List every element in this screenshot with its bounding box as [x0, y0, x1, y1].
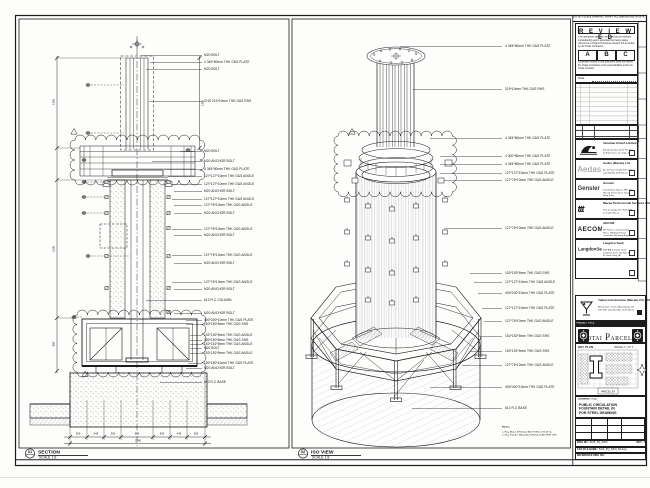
top-note: DO NOT SCALE DRAWING. VERIFY ALL DIMENSI…: [573, 16, 646, 19]
dimension-label: 1350: [52, 99, 55, 105]
callout-label: M20 BOLT: [204, 68, 220, 71]
consultant-gensler: Gensler Gensler Two Harbour Square 18/F,…: [575, 179, 639, 199]
callout-label: 127*76*10mm THK G&S ANGLE: [204, 254, 253, 257]
callout-label: M20 ANCHOR BOLT: [204, 367, 235, 370]
reference-row: REFERENCE DWG NO :: [575, 453, 646, 460]
callout-label: M20 ANCHOR BOLT: [204, 288, 235, 291]
callout-label: 610 R.C BASE: [505, 407, 527, 410]
callout-label: 127*127*10mm THK G&S PLATE: [505, 172, 555, 175]
review-checkbox[interactable]: [629, 190, 635, 196]
callout-label: 150*150*10mm THK G&S PLATE: [204, 362, 254, 365]
callout-label: M20 BOLT: [204, 347, 220, 350]
page-edge-line: [0, 477, 650, 478]
drawing-fields: DESIGNED - SCALE AS SHOWN CHECKED - DATE…: [575, 418, 646, 440]
parcel-lot-label: PARCEL 1, LOT 2: [614, 346, 634, 349]
callout-label: 127*127*10mm THK G&S ANGLE: [505, 281, 555, 284]
project-title-banner: Cotai Parcel 3: [575, 326, 646, 343]
callout-label: 127*76*10mm THK G&S ANGLE: [505, 364, 554, 367]
consultant-aedas: Aedas Aedas (Macau) Ltd. Av. da Praia Gr…: [575, 159, 639, 179]
status-options: A B C: [578, 50, 635, 60]
aecom-logo: AECOM: [578, 222, 602, 237]
callout-label: 127*127*10mm THK G&S PLATE: [505, 307, 555, 310]
gensler-logo: Gensler: [578, 182, 602, 197]
consultant-mps: ttt Macau Professional Services Ltd. Rua…: [575, 199, 639, 219]
callout-label: 4 345*50mm THK G&S PLATE: [204, 61, 250, 64]
callout-label: 127*76*10mm THK G&S ANGLE: [505, 179, 554, 182]
callout-label: 127*76*10mm THK G&S ANGLE: [204, 204, 253, 207]
date-row: Date :: [575, 75, 638, 83]
section-title: SECTION: [38, 449, 60, 455]
callout-label: 400*400*10mm THK G&S PLATE: [505, 386, 555, 389]
dimension-label: 650: [135, 432, 140, 435]
sheet-linework: [0, 0, 650, 488]
callout-label: M20 ANCHOR BOLT: [204, 312, 235, 315]
iso-scale: SCALE 1:8: [312, 456, 329, 460]
stamp-paragraph-1: This document has been reviewed by the r…: [578, 36, 635, 48]
drawing-title-block: DRAWING TITLE: PUBLIC CIRCULATION FOUNTA…: [575, 396, 646, 418]
revision-rows: B 28.05.15 ISSUED FOR APPROVAL KC A 11.0…: [575, 125, 638, 139]
consultant-langdonseah: LangdonSeah Langdon Seah 38/F AIA Kowloo…: [575, 239, 639, 259]
dimension-label: 300: [76, 432, 81, 435]
reviewed-stamp: R E V I E W E D This document has been r…: [575, 23, 638, 75]
callout-label: M20 BOLT: [204, 54, 220, 57]
consultant-empty: [575, 259, 639, 279]
project-title-label: PROJECT TITLE: [575, 322, 646, 325]
option-b[interactable]: B: [597, 50, 616, 61]
contractor-block: Yadea Construction (Macau) CO, LTD. Alam…: [575, 295, 646, 321]
callout-label: 4 345*50mm THK G&S PLATE: [505, 163, 551, 166]
callout-label: 219*10mm THK G&S RHS: [505, 88, 544, 91]
callout-label: 152*152*5mm THK G&S SHS: [505, 272, 549, 275]
callout-label: 152*152*5mm THK G&S ANGLE: [204, 334, 253, 337]
callout-label: 152*152*5mm THK G&S SHS: [505, 350, 549, 353]
dimension-label: 445: [93, 432, 98, 435]
drawing-title-label: DRAWING TITLE:: [578, 398, 647, 401]
dimension-label: 300: [159, 432, 164, 435]
review-checkbox[interactable]: [629, 210, 635, 216]
callout-label: 152*152*5mm THK G&S SHS: [505, 335, 549, 338]
callout-label: M20 ANCHOR BOLT: [204, 160, 235, 163]
callout-label: M20 ANCHOR BOLT: [204, 234, 235, 237]
contractor-stamp-square: [637, 310, 642, 315]
review-checkbox[interactable]: [629, 170, 635, 176]
callout-label: 4 300*50mm THK G&S PLATE: [505, 155, 551, 158]
contractor-address: Alameda Dr. Carlos d'Assumpção, No. 180,…: [598, 306, 636, 312]
section-scale: SCALE 1:8: [39, 456, 56, 460]
callout-label: 127*76*10mm THK G&S ANGLE: [505, 227, 554, 230]
dimension-label: 1350: [201, 100, 204, 106]
consultant-aecom: AECOM AECOM 8/F Tower 2, Grand Central P…: [575, 219, 639, 239]
option-a[interactable]: A: [578, 50, 597, 61]
review-checkbox[interactable]: [629, 150, 635, 156]
callout-label: 400*200*10mm THK G&S PLATE: [505, 292, 555, 295]
north-arrow-icon: [637, 364, 646, 376]
key-plan: KEY PLAN PARCEL 1, LOT 2 PARCEL 3A: [575, 343, 646, 396]
dimension-label: 300: [110, 432, 115, 435]
iso-view: [298, 47, 486, 458]
top-note-bar: DO NOT SCALE DRAWING. VERIFY ALL DIMENSI…: [573, 16, 646, 22]
callout-label: 127*127*10mm THK G&S ANGLE: [204, 175, 254, 178]
langdonseah-logo: LangdonSeah: [578, 247, 602, 251]
drawing-sheet: M20 BOLT4 345*50mm THK G&S PLATEM20 BOLT…: [0, 0, 650, 488]
callout-label: M20 ANCHOR BOLT: [204, 190, 235, 193]
callout-label: 127*127*10mm THK G&S ANGLE: [204, 183, 254, 186]
callout-label: CHS 219*10mm THK G&S RHS: [204, 100, 251, 103]
date-field[interactable]: [592, 81, 636, 82]
review-checkbox[interactable]: [629, 270, 635, 276]
right-margin-strip: [638, 22, 646, 282]
callout-label: 127*76*10mm THK G&S ANGLE: [204, 281, 253, 284]
callout-label: M20 ANCHOR BOLT: [204, 262, 235, 265]
callout-label: M20 BOLT: [204, 150, 220, 153]
callout-label: 4 345*50mm THK G&S PLATE: [204, 168, 250, 171]
key-plan-label: KEY PLAN: [578, 345, 593, 349]
venetian-lion-logo-icon: [578, 142, 602, 157]
dimension-label: 900: [52, 342, 55, 347]
callout-label: 4 345*50mm THK G&S PLATE: [505, 45, 551, 48]
drawing-title-line: FOR STEEL DRAWING: [579, 411, 647, 415]
review-checkbox[interactable]: [629, 250, 635, 256]
revision-table-empty: [575, 83, 638, 125]
dimension-label: 2100: [52, 246, 55, 252]
callout-label: 150*150*5mm THK G&S SHS: [204, 323, 248, 326]
callout-label: 127*76*10mm THK G&S ANGLE: [204, 228, 253, 231]
reviewed-title: R E V I E W E D: [578, 26, 635, 34]
dimension-label: 2740: [134, 439, 140, 442]
consultant-venetian: Venetian Orient Limited Estrada da Baía …: [575, 139, 639, 159]
callout-label: 152*152*5mm THK G&S ANGLE: [204, 352, 253, 355]
callout-label: 127*76*10mm THK G&S ANGLE: [505, 320, 554, 323]
aedas-logo: Aedas: [578, 162, 602, 177]
iso-bubble: 02: [300, 450, 307, 454]
section-bubble: 01: [27, 450, 34, 454]
callout-label: 610 R.C BASE: [204, 381, 226, 384]
key-plan-map: KEY PLAN PARCEL 1, LOT 2 PARCEL 3A: [576, 344, 646, 396]
iso-note: NOTE: 1. ALL BOLT SHOULD BE FIXING ON SI…: [502, 426, 568, 442]
stamp-paragraph-2: Consultant review of this document does …: [578, 61, 635, 70]
option-c[interactable]: C: [616, 50, 635, 61]
mps-logo: ttt: [578, 202, 602, 217]
dwg-no-row: DWG NO : 5106_PQ_5009 REV : C: [575, 440, 646, 447]
review-checkbox[interactable]: [629, 230, 635, 236]
contractor-name: Yadea Construction (Macau) CO, LTD.: [598, 299, 636, 302]
callout-label: 127*127*10mm THK G&S ANGLE: [204, 198, 254, 201]
contractor-logo-icon: [579, 300, 595, 322]
iso-title: ISO VIEW: [311, 449, 334, 455]
callout-label: 4 345*50mm THK G&S PLATE: [505, 137, 551, 140]
callout-label: 610 R.C COLUMN: [204, 299, 232, 302]
dimension-label: 445: [176, 432, 181, 435]
callout-label: M20 ANCHOR BOLT: [204, 212, 235, 215]
parcel-box-label: PARCEL 3A: [601, 389, 615, 393]
dimension-label: 300: [194, 432, 199, 435]
